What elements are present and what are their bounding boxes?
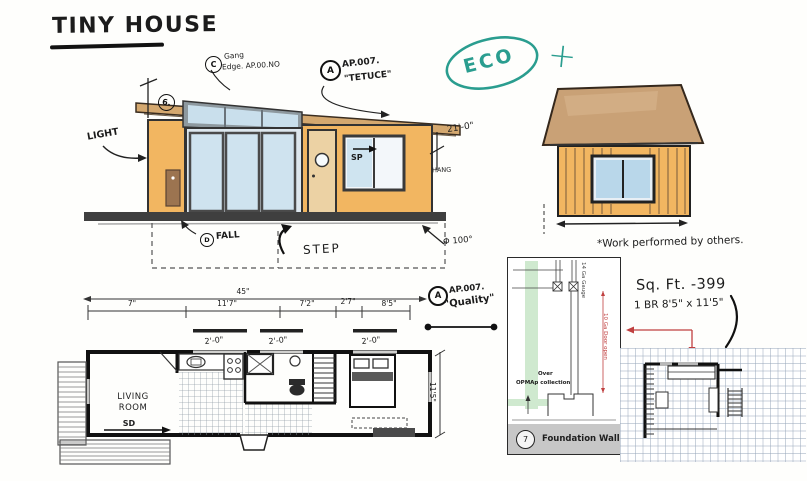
- foundation-note-collection: OPMAp collection: [516, 380, 570, 386]
- leader-arrow-icon: [381, 111, 390, 119]
- plan-dim-side: 11'5": [428, 382, 437, 402]
- step-label: STEP: [303, 241, 341, 257]
- plan-dim-5: 8'5": [381, 299, 396, 308]
- footing: [548, 394, 593, 416]
- grid-plan-drawing: [620, 348, 806, 462]
- foundation-label: Foundation Wall: [542, 434, 620, 444]
- sp-label: SP: [351, 153, 363, 162]
- page-title: TINY HOUSE: [52, 12, 218, 39]
- sd-label: SD: [123, 419, 135, 428]
- living-room-label-1: LIVING: [117, 392, 149, 402]
- sqft-note: Sq. Ft. -399: [636, 276, 726, 294]
- fall-badge: D: [200, 233, 214, 247]
- foundation-number-badge: 7: [516, 430, 535, 449]
- base-platform: [84, 212, 446, 221]
- foundation-panel-footer: 7 Foundation Wall: [508, 424, 620, 454]
- bath-sink: [290, 356, 300, 366]
- plan-dim-1: 7": [128, 299, 136, 308]
- stove: [224, 354, 243, 379]
- stairs: [313, 358, 335, 398]
- foundation-panel: 14 Ga Gauge 10 Ga Door open Over OPMAp c…: [507, 257, 621, 455]
- sd-arrow-icon: [162, 427, 171, 434]
- plan-dim-overall: 45": [237, 287, 250, 296]
- entry-step: [240, 435, 268, 450]
- side-house-sketch: [538, 76, 768, 256]
- callout-a-badge: A: [320, 60, 341, 81]
- tower-panel: [166, 170, 180, 206]
- kitchen-sink: [187, 357, 205, 368]
- hang-label: HANG: [432, 166, 452, 175]
- living-room-label-2: ROOM: [119, 403, 148, 413]
- foundation-dashed-lines: [152, 223, 445, 268]
- grid-plan-stairs: [728, 391, 742, 415]
- floor-plan-sketch: [50, 282, 455, 477]
- toilet: [290, 385, 305, 396]
- plan-dim-2: 11'7": [217, 299, 237, 308]
- callout-c-badge: C: [205, 56, 222, 73]
- callout-c-line1: Gang: [224, 50, 245, 61]
- plan-dim-3: 7'2": [299, 299, 314, 308]
- foundation-note-door: 10 Ga Door open: [602, 313, 608, 360]
- grid-plan: [620, 348, 806, 462]
- foundation-note-gauge: 14 Ga Gauge: [580, 262, 586, 298]
- light-arrow-icon: [138, 154, 147, 162]
- fall-label: FALL: [216, 230, 240, 242]
- foundation-note-over: Over: [538, 371, 553, 377]
- side-deck: [58, 362, 86, 445]
- sketch-sheet: TINY HOUSE ECO +: [0, 0, 807, 481]
- entry-door: [308, 130, 336, 215]
- paren-stroke: [705, 293, 745, 351]
- eco-logo-plus: +: [546, 35, 579, 78]
- plan-dim-4: 2'7": [340, 297, 355, 306]
